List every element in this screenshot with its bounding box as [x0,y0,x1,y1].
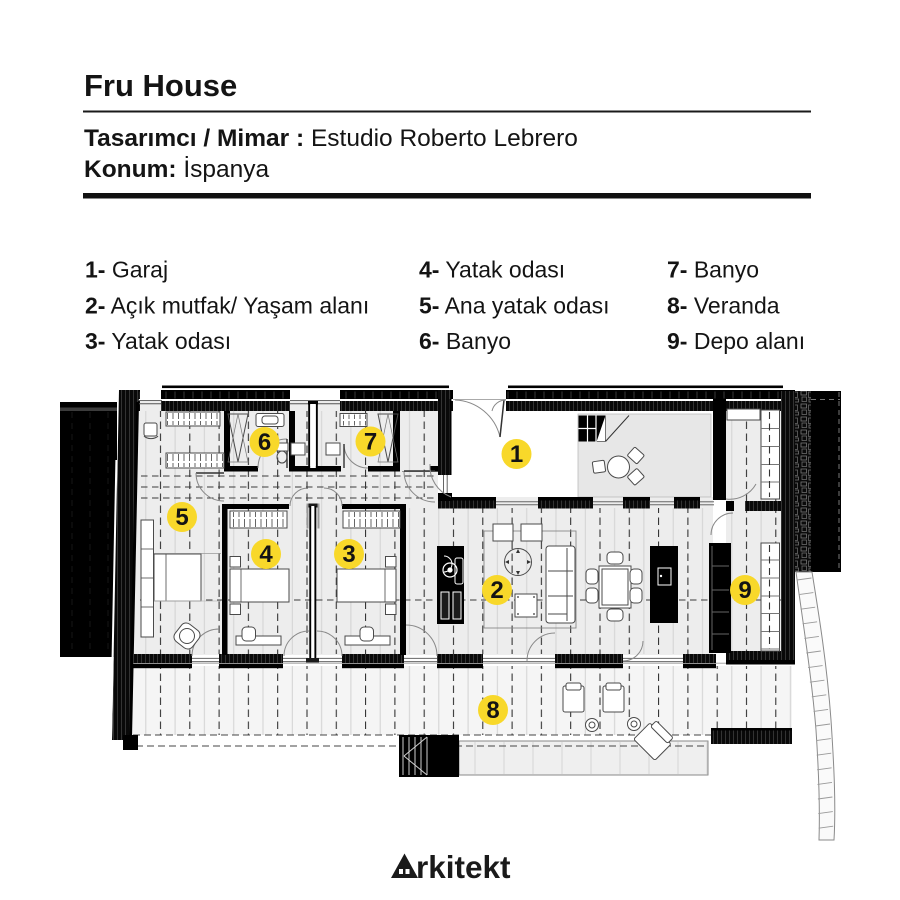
svg-text:7- Banyo: 7- Banyo [667,257,759,283]
svg-text:4- Yatak odası: 4- Yatak odası [419,257,565,283]
svg-text:8: 8 [486,697,499,724]
svg-text:3- Yatak odası: 3- Yatak odası [85,328,231,354]
svg-text:6- Banyo: 6- Banyo [419,328,511,354]
svg-text:5- Ana yatak odası: 5- Ana yatak odası [419,293,610,319]
svg-text:4: 4 [259,541,273,568]
svg-text:rkitekt: rkitekt [416,849,511,885]
svg-text:2- Açık mutfak/ Yaşam alanı: 2- Açık mutfak/ Yaşam alanı [85,293,369,319]
svg-text:Fru House: Fru House [84,68,237,103]
svg-text:9- Depo alanı: 9- Depo alanı [667,328,805,354]
svg-text:6: 6 [258,429,271,456]
svg-text:7: 7 [364,429,377,456]
svg-text:9: 9 [738,577,751,604]
svg-text:Konum: İspanya: Konum: İspanya [84,156,270,183]
svg-text:2: 2 [490,577,503,604]
svg-text:1- Garaj: 1- Garaj [85,257,168,283]
svg-text:1: 1 [510,441,523,468]
svg-text:Tasarımcı / Mimar : Estudio Ro: Tasarımcı / Mimar : Estudio Roberto Lebr… [84,125,578,152]
svg-text:5: 5 [175,504,188,531]
svg-text:3: 3 [342,541,355,568]
svg-text:8- Veranda: 8- Veranda [667,293,780,319]
